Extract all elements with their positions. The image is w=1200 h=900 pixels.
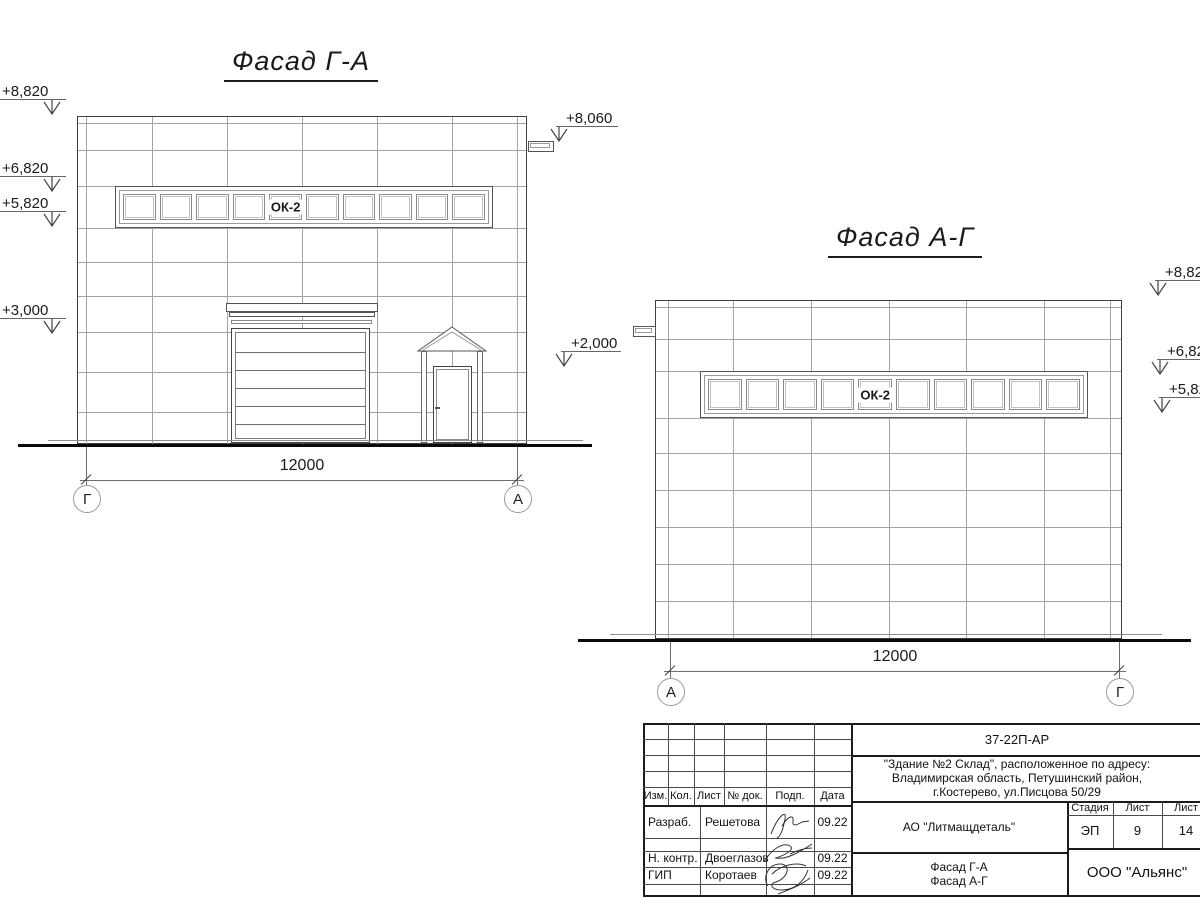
window-pane — [821, 379, 855, 410]
window-band-ok2-ag: ОК-2 — [700, 371, 1088, 418]
doc-number: 37-22П-АР — [851, 725, 1183, 755]
window-pane — [416, 194, 449, 220]
row1-date: 09.22 — [814, 807, 851, 838]
window-pane — [123, 194, 156, 220]
ground-line-ga — [18, 444, 592, 447]
gate-canopy-lip — [231, 320, 372, 324]
axis-marker-a: А — [504, 485, 532, 513]
client-name: АО "Литмащдеталь" — [851, 803, 1067, 852]
window-pane — [746, 379, 780, 410]
sheets-value: 14 — [1162, 815, 1200, 848]
elevation-value: +8,060 — [566, 110, 612, 127]
window-pane — [934, 379, 968, 410]
row2-name: Двоеглазов — [702, 851, 766, 867]
window-pane — [1009, 379, 1043, 410]
org-name: ООО "Альянс" — [1067, 850, 1200, 895]
col-izm: Изм. — [643, 787, 668, 805]
elevation-arrow-icon — [41, 100, 63, 115]
elevation-arrow-icon — [553, 352, 575, 367]
elevation-arrow-icon — [1149, 360, 1171, 375]
elevation-value: +5,82 — [1169, 381, 1200, 398]
porch-post-right — [477, 351, 483, 443]
window-pane — [971, 379, 1005, 410]
door-handle — [435, 407, 440, 409]
window-pane — [196, 194, 229, 220]
col-kol: Кол. — [668, 787, 694, 805]
sheet-value: 9 — [1113, 815, 1162, 848]
col-data: Дата — [814, 787, 851, 805]
col-ndok: № док. — [724, 787, 766, 805]
dimension-ag: 12000 — [855, 648, 935, 666]
object-address: "Здание №2 Склад", расположенное по адре… — [851, 757, 1183, 801]
stage-label: Стадия — [1067, 801, 1113, 815]
drawing-sheet: Фасад Г-А ОК-2 — [0, 0, 1200, 900]
facade-ag-title-text: Фасад А-Г — [828, 222, 982, 258]
window-band-ok2-ga: ОК-2 — [115, 186, 493, 228]
axis-marker-g: Г — [73, 485, 101, 513]
window-pane — [306, 194, 339, 220]
window-pane — [233, 194, 266, 220]
dimension-ga: 12000 — [262, 457, 342, 475]
col-podp: Подп. — [766, 787, 814, 805]
window-pane — [896, 379, 930, 410]
window-pane — [708, 379, 742, 410]
gate-canopy — [226, 303, 378, 312]
gate-canopy-step — [229, 312, 375, 317]
window-pane — [379, 194, 412, 220]
facade-ag-title: Фасад А-Г — [805, 222, 1005, 258]
elevation-arrow-icon — [548, 127, 570, 142]
elevation-value: +8,820 — [2, 83, 48, 100]
porch-gable-roof — [417, 326, 487, 353]
elevation-value: +5,820 — [2, 195, 48, 212]
axis-marker-a2: А — [657, 678, 685, 706]
elevation-value: +6,820 — [2, 160, 48, 177]
sheets-label: Лист — [1162, 801, 1200, 815]
row2-date: 09.22 — [814, 851, 851, 867]
window-pane — [160, 194, 193, 220]
elevation-value: +8,82 — [1165, 264, 1200, 281]
elevation-arrow-icon — [1147, 281, 1169, 296]
elevation-arrow-icon — [41, 319, 63, 334]
row3-name: Коротаев — [702, 867, 766, 884]
row1-role: Разраб. — [645, 807, 700, 838]
window-pane: ОК-2 — [269, 194, 302, 220]
window-pane — [452, 194, 485, 220]
elevation-arrow-icon — [41, 212, 63, 227]
stage-value: ЭП — [1067, 815, 1113, 848]
window-type-label: ОК-2 — [857, 387, 893, 402]
elevation-value: +2,000 — [571, 335, 617, 352]
col-list: Лист — [694, 787, 724, 805]
facade-ga-title-text: Фасад Г-А — [224, 46, 378, 82]
sheet-label: Лист — [1113, 801, 1162, 815]
porch-post-left — [421, 351, 427, 443]
row3-role: ГИП — [645, 867, 700, 884]
row2-role: Н. контр. — [645, 851, 700, 867]
elevation-arrow-icon — [1151, 398, 1173, 413]
window-pane — [343, 194, 376, 220]
signature-scribble — [758, 856, 818, 896]
elevation-value: +6,82 — [1167, 343, 1200, 360]
sheet-content: Фасад Г-А Фасад А-Г — [851, 854, 1067, 895]
window-pane — [1046, 379, 1080, 410]
axis-marker-g2: Г — [1106, 678, 1134, 706]
signature-scribble — [768, 806, 814, 840]
row1-name: Решетова — [702, 807, 764, 838]
facade-ga-title: Фасад Г-А — [201, 46, 401, 82]
elevation-arrow-icon — [41, 177, 63, 192]
window-pane: ОК-2 — [858, 379, 892, 410]
window-pane — [783, 379, 817, 410]
window-type-label: ОК-2 — [268, 200, 304, 215]
elevation-value: +3,000 — [2, 302, 48, 319]
row3-date: 09.22 — [814, 867, 851, 884]
